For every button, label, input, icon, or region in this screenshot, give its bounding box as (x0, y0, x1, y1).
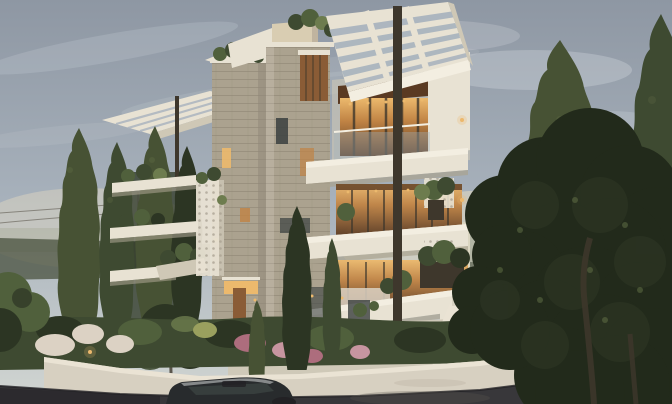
perforated-screen-left (196, 167, 227, 276)
render-canvas (0, 0, 672, 404)
architectural-rendering (0, 0, 672, 404)
structural-column (393, 6, 402, 336)
